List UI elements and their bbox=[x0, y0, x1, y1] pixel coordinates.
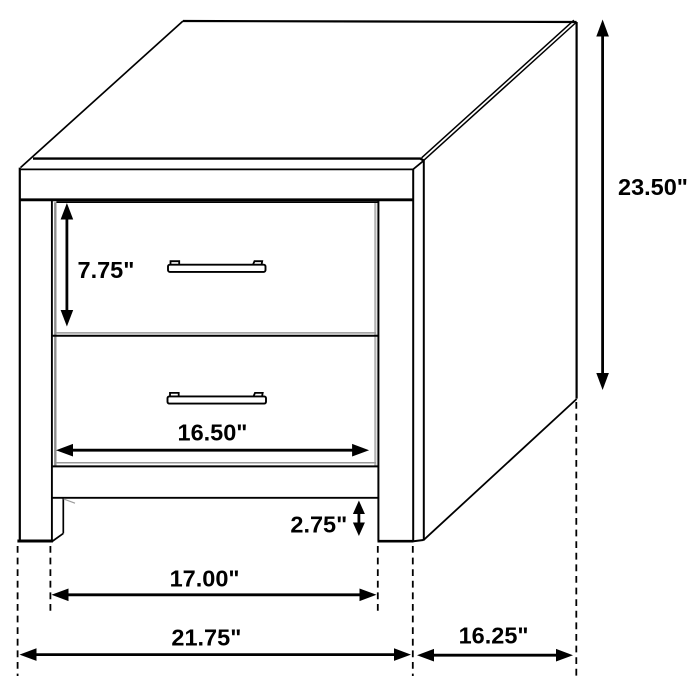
svg-text:2.75": 2.75" bbox=[290, 511, 347, 537]
svg-text:17.00": 17.00" bbox=[170, 565, 240, 591]
svg-text:16.25": 16.25" bbox=[459, 623, 529, 649]
svg-text:16.50": 16.50" bbox=[178, 420, 248, 446]
svg-text:21.75": 21.75" bbox=[171, 625, 241, 651]
svg-text:7.75": 7.75" bbox=[78, 257, 135, 283]
svg-text:23.50": 23.50" bbox=[618, 174, 688, 200]
